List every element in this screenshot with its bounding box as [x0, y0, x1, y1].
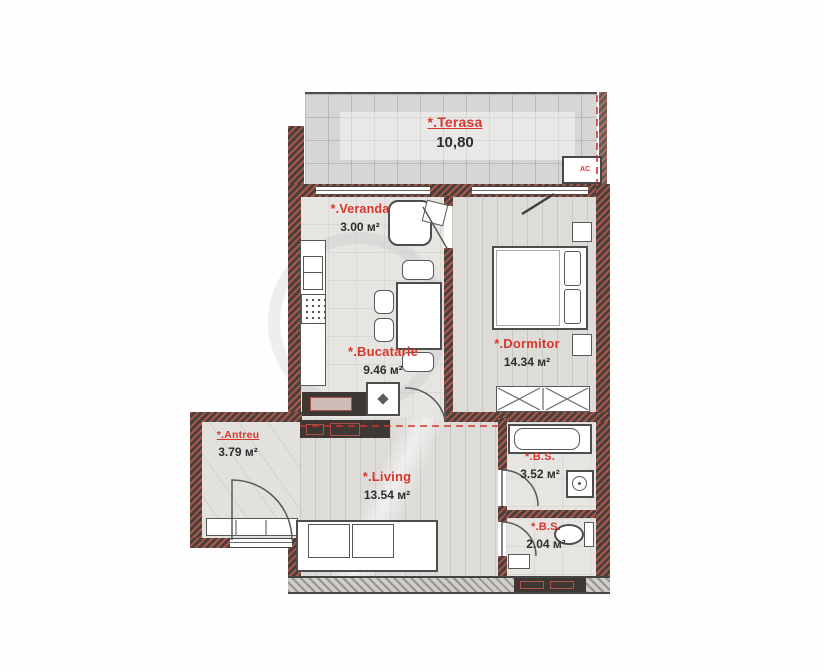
dormitor-area: 14.34 м²: [470, 355, 584, 369]
antreu-label-group: *.Antreu 3.79 м²: [194, 429, 282, 459]
bs1-area: 3.52 м²: [494, 467, 586, 481]
kitchen-sink: [303, 256, 323, 290]
kitchen-console-item: [310, 397, 352, 411]
wall-terrace-column: [288, 126, 304, 186]
living-label-group: *.Living 13.54 м²: [332, 469, 442, 502]
bed-pillow-2: [564, 289, 581, 324]
bs2-name: *.B.S.: [500, 521, 592, 534]
bed-pillow-1: [564, 251, 581, 286]
veranda-label-group: *.Veranda 3.00 м²: [308, 202, 412, 234]
tv-item-1: [306, 424, 324, 435]
kitchen-stove: [301, 294, 326, 324]
chair-left-2: [374, 318, 394, 342]
hall-closet: [206, 518, 298, 536]
nightstand-top: [572, 222, 592, 242]
tv-item-2: [330, 423, 360, 436]
bs2-area: 2.04 м²: [500, 537, 592, 551]
living-name: *.Living: [332, 469, 442, 485]
radiator-cell-1: [520, 581, 544, 589]
bathtub-inner: [514, 428, 580, 450]
bs1-label-group: *.B.S. 3.52 м²: [494, 451, 586, 482]
terasa-area: 10,80: [385, 134, 525, 152]
washing-machine-dot: [578, 482, 581, 485]
ac-label: AC: [580, 166, 590, 173]
bs2-label-group: *.B.S. 2.04 м²: [500, 521, 592, 552]
wall-bath-left-c: [498, 556, 507, 576]
floor-plan: AC: [0, 0, 824, 672]
terasa-name: *.Terasa: [385, 114, 525, 131]
chair-top: [402, 260, 434, 280]
dining-table: [396, 282, 442, 350]
sofa-cushion-2: [352, 524, 394, 558]
wall-bath-divider: [506, 510, 596, 518]
living-area: 13.54 м²: [332, 488, 442, 502]
wall-hall-bottom-left: [190, 538, 230, 548]
bs1-name: *.B.S.: [494, 451, 586, 464]
entrance-threshold: [230, 538, 292, 548]
antreu-name: *.Antreu: [194, 429, 282, 442]
kitchen-appliance-square: [366, 382, 400, 416]
bucatarie-area: 9.46 м²: [328, 363, 438, 377]
wall-bedroom-bottom: [444, 412, 610, 422]
wall-kitchen-bedroom: [444, 248, 453, 418]
dormitor-name: *.Dormitor: [470, 336, 584, 352]
bath2-sink: [508, 554, 530, 569]
window-bedroom: [472, 186, 588, 195]
radiator-cell-2: [550, 581, 574, 589]
bed-mattress: [496, 250, 560, 326]
chair-left-1: [374, 290, 394, 314]
wall-hall-top: [190, 412, 302, 422]
window-veranda: [316, 186, 430, 195]
sofa-cushion-1: [308, 524, 350, 558]
veranda-area: 3.00 м²: [308, 220, 412, 234]
kitchen-sink-divider: [303, 272, 323, 273]
wardrobe: [496, 386, 590, 412]
veranda-name: *.Veranda: [308, 202, 412, 217]
terasa-label-group: *.Terasa 10,80: [385, 114, 525, 152]
appliance-diamond-icon: [377, 393, 388, 404]
bucatarie-label-group: *.Bucatarie 9.46 м²: [328, 344, 438, 377]
antreu-area: 3.79 м²: [194, 445, 282, 459]
bucatarie-name: *.Bucatarie: [328, 344, 438, 360]
dormitor-label-group: *.Dormitor 14.34 м²: [470, 336, 584, 369]
wall-right-exterior: [596, 184, 610, 576]
